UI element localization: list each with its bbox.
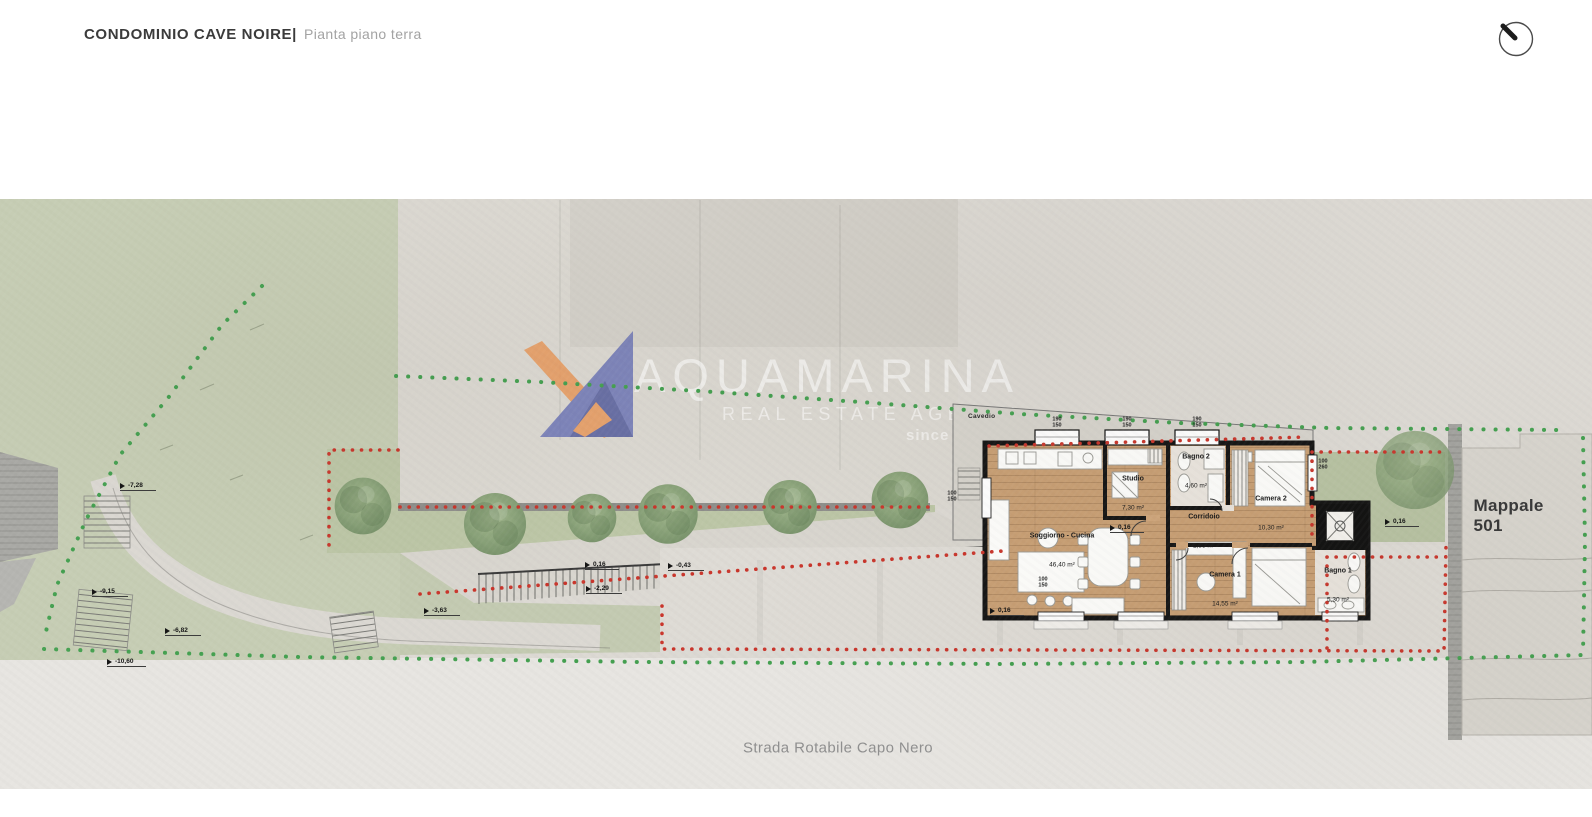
window-dim: 100 260 xyxy=(1318,459,1327,472)
spot-level: -6,82 xyxy=(165,627,201,636)
spot-level: -0,43 xyxy=(668,562,704,571)
spot-level: 0,16 xyxy=(1385,518,1419,527)
road-label: Strada Rotabile Capo Nero xyxy=(743,740,933,757)
building-plan xyxy=(953,404,1368,629)
window-dim: 190 150 xyxy=(1052,417,1061,430)
parcel-label: Mappale 501 xyxy=(1474,496,1553,536)
spot-level: -10,60 xyxy=(107,658,146,667)
cavedio-label: Cavedio xyxy=(968,413,995,420)
window-dim: 100 150 xyxy=(1038,577,1047,590)
room-label-studio: Studio 7,30 m² xyxy=(1122,456,1144,533)
spot-level: -3,63 xyxy=(424,607,460,616)
floorplan-page: AQUAMARINA REAL ESTATE AGENCY since 2003 xyxy=(0,0,1592,817)
window-dim: 100 150 xyxy=(947,491,956,504)
elevator xyxy=(1316,504,1368,550)
north-arrow-icon xyxy=(1494,18,1536,60)
room-label-bagno1: Bagno 1 5,30 m² xyxy=(1324,548,1352,625)
spot-level: 0,16 xyxy=(585,561,619,570)
spot-level: 0,16 xyxy=(990,607,1024,616)
site-plan-drawing: AQUAMARINA REAL ESTATE AGENCY since 2003 xyxy=(0,0,1592,817)
room-label-camera1: Camera 1 14,55 m² xyxy=(1209,552,1241,629)
room-label-camera2: Camera 2 10,30 m² xyxy=(1255,476,1287,553)
spot-level: -7,28 xyxy=(120,482,156,491)
window-dim: 190 150 xyxy=(1192,417,1201,430)
watermark-brand: AQUAMARINA xyxy=(634,349,1020,402)
spot-level: -2,29 xyxy=(586,585,622,594)
spot-level: -9,15 xyxy=(92,588,128,597)
page-subtitle: Pianta piano terra xyxy=(304,26,422,42)
spot-level: 0,16 xyxy=(1110,524,1144,533)
window-dim: 190 150 xyxy=(1122,417,1131,430)
drawing-title-block: CONDOMINIO CAVE NOIRE| Pianta piano terr… xyxy=(84,26,422,43)
page-title: CONDOMINIO CAVE NOIRE| xyxy=(84,26,297,43)
